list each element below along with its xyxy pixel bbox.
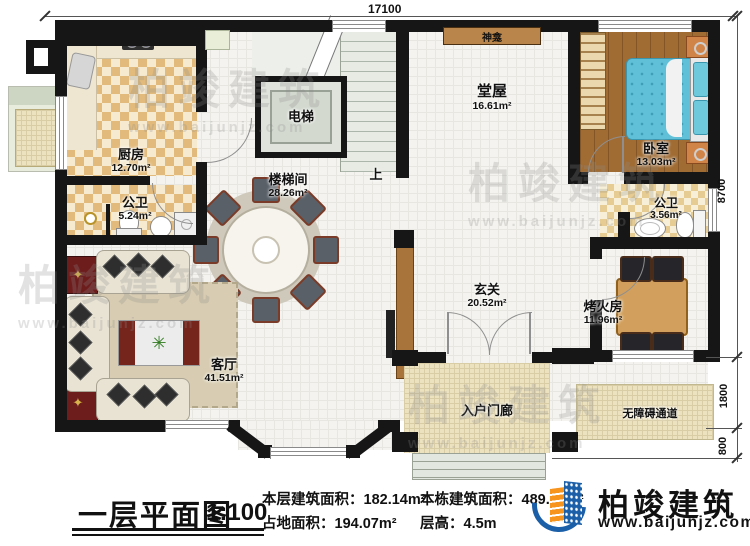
logo-building-orange: [550, 487, 565, 523]
window-top-stairs: [332, 20, 386, 32]
entry-steps: [412, 453, 546, 480]
window-top-bedroom: [598, 20, 692, 32]
logo-building-blue: [564, 481, 582, 525]
title-underline-thin: [72, 534, 264, 536]
room-label-bedroom: 卧室 13.03m²: [636, 142, 675, 168]
bedroom-door-panel: [622, 136, 624, 173]
dimension-line-top: [44, 16, 738, 17]
room-label-kitchen: 厨房 12.70m²: [111, 148, 150, 174]
bed-sheet-fold: [666, 59, 682, 137]
lamp-icon: [694, 42, 707, 55]
window-left-kitchen: [55, 96, 67, 170]
pillow-icon: [693, 100, 709, 135]
coffee-table-icon: ✳: [118, 320, 200, 366]
room-label-fireroom: 烤火房 11.96m²: [583, 300, 622, 326]
room-label-bath2: 公卫 3.56m²: [650, 197, 682, 222]
room-label-bath1: 公卫 5.24m²: [118, 196, 151, 222]
stairs-up-label: 上: [369, 168, 382, 183]
stat-height: 层高：4.5m: [420, 512, 497, 533]
wall-bedroom-bottom-b: [624, 172, 720, 184]
dim-ext-line: [552, 458, 742, 459]
stat-footprint: 占地面积：194.07m²: [262, 512, 397, 533]
column-hall: [394, 230, 414, 248]
pillow-icon: [693, 62, 709, 97]
floor-plan-page: ✦ ✦ ✳ 神龛: [0, 0, 750, 546]
wall-bath2-bottom: [590, 237, 720, 249]
wall-kitchen-right-b: [196, 162, 207, 244]
plan-scale: 1:100: [206, 499, 267, 527]
lamp-icon: [694, 148, 707, 161]
wall-stairwell-right: [396, 20, 409, 178]
dining-table-center: [252, 236, 280, 264]
floor-drain-icon: [84, 212, 97, 225]
wall-top-kitchen: [55, 20, 200, 46]
flue-block: [205, 30, 230, 50]
wall-bedroom-bottom-a: [580, 172, 588, 184]
logo-icon: [530, 472, 596, 540]
wall-fire-left-a: [590, 249, 602, 259]
room-label-ramp: 无障碍通道: [623, 408, 678, 420]
sink-basin-icon: [640, 222, 660, 235]
entry-door-right-panel: [529, 312, 531, 354]
porch-column-br: [552, 432, 578, 452]
room-label-porch: 入户门廊: [461, 404, 513, 419]
wall-left: [55, 20, 67, 432]
room-label-living: 客厅 41.51m²: [204, 358, 243, 384]
title-underline-thick: [72, 528, 264, 531]
logo-url: www.baijunjz.com: [598, 514, 750, 532]
dining-chair-icon: [313, 236, 339, 264]
window-bay-bottom: [270, 447, 350, 459]
stat-floor-area: 本层建筑面积：182.14m²: [262, 488, 426, 509]
dimension-line-right: [737, 16, 738, 462]
porch-column-tr: [552, 348, 594, 364]
wardrobe-icon: [580, 32, 606, 130]
kitchen-counter-left: [66, 32, 97, 150]
shrine-bar: 神龛: [443, 27, 541, 45]
dim-depth-main-label: 8700: [716, 179, 728, 203]
entry-door-left-panel: [447, 312, 449, 354]
room-label-elevator: 电梯: [288, 110, 314, 125]
porch-column-bl: [392, 432, 418, 452]
wall-bath2-left: [618, 212, 630, 240]
wall-kitchen-bath1: [66, 176, 150, 185]
dim-width-label: 17100: [368, 2, 401, 16]
bed-icon: [626, 58, 696, 140]
stairs: [340, 21, 397, 172]
company-logo: 柏竣建筑 www.baijunjz.com: [530, 472, 740, 542]
bath1-partition-wall: [106, 204, 110, 235]
bath2-toilet-tank-icon: [693, 210, 706, 239]
wall-porch-top-left: [396, 352, 446, 363]
room-label-stairhall: 楼梯间 28.26m²: [268, 173, 307, 199]
wall-bath1-bottom: [55, 235, 207, 245]
wall-bay-top-right: [378, 420, 400, 432]
chimney-block: [26, 40, 56, 74]
fire-chair-icon: [652, 256, 684, 282]
dim-depth-steps-label: 800: [717, 437, 729, 455]
dining-chair-icon: [252, 297, 280, 323]
dim-depth-ramp-label: 1800: [718, 384, 730, 408]
shrine-label: 神龛: [482, 29, 502, 44]
room-label-foyer: 玄关 20.52m²: [467, 283, 506, 309]
room-label-hall: 堂屋 16.61m²: [472, 84, 511, 113]
window-fire-bottom: [612, 350, 694, 362]
window-living-bottom: [165, 420, 229, 432]
wall-bedroom-left: [568, 20, 580, 184]
